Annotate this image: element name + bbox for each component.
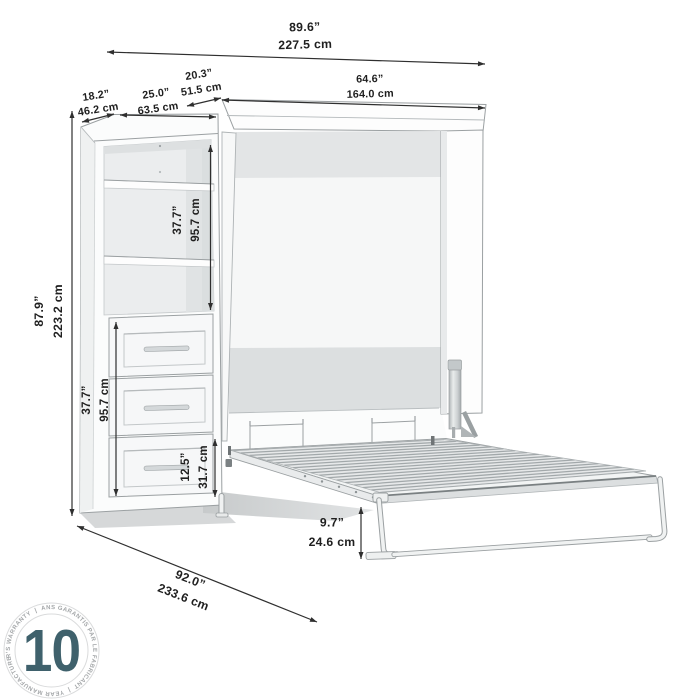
svg-text:10: 10: [23, 617, 80, 683]
svg-text:89.6”: 89.6”: [289, 20, 321, 35]
svg-text:64.6”: 64.6”: [356, 73, 384, 86]
svg-text:31.7 cm: 31.7 cm: [198, 445, 210, 489]
svg-text:223.2 cm: 223.2 cm: [51, 284, 65, 338]
svg-text:24.6 cm: 24.6 cm: [309, 535, 356, 549]
svg-text:95.7 cm: 95.7 cm: [190, 198, 202, 242]
svg-text:87.9”: 87.9”: [32, 295, 46, 326]
svg-text:37.7”: 37.7”: [172, 205, 184, 234]
svg-text:12.5”: 12.5”: [180, 452, 192, 481]
svg-text:37.7”: 37.7”: [81, 385, 93, 414]
svg-text:9.7”: 9.7”: [320, 516, 344, 530]
svg-text:25.0”: 25.0”: [142, 86, 171, 102]
svg-text:95.7 cm: 95.7 cm: [99, 378, 111, 422]
svg-text:51.5 cm: 51.5 cm: [180, 81, 222, 99]
svg-text:227.5 cm: 227.5 cm: [278, 37, 332, 52]
svg-text:164.0 cm: 164.0 cm: [346, 88, 394, 101]
svg-text:20.3”: 20.3”: [184, 67, 213, 83]
